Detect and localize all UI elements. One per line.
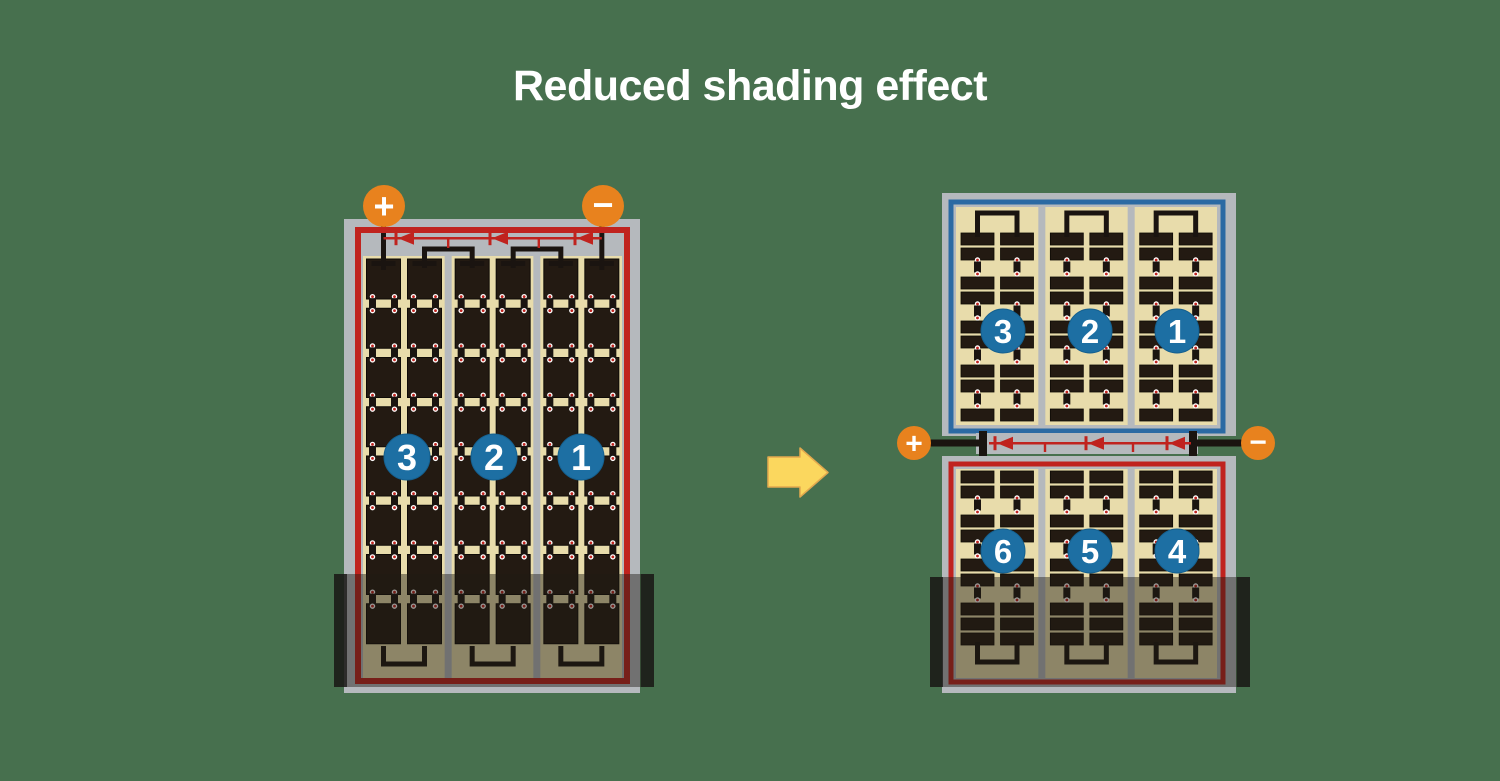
connector-dot	[1194, 511, 1197, 514]
connector-bar	[1153, 500, 1160, 511]
connector-dot	[1194, 347, 1197, 350]
diode-icon	[574, 231, 577, 245]
connector-dot	[371, 345, 374, 348]
connector-dot	[501, 345, 504, 348]
connector-dot	[434, 309, 437, 312]
connector-dot	[412, 359, 415, 362]
connector-dot	[460, 457, 463, 460]
connector-dot	[1065, 361, 1068, 364]
connector-bar	[609, 347, 616, 358]
connector-bar	[568, 495, 575, 506]
connector-bar	[369, 347, 376, 358]
connector-bar	[1192, 306, 1199, 317]
connector-dot	[589, 506, 592, 509]
connector-dot	[393, 408, 396, 411]
connector-bar	[458, 397, 465, 408]
right-bottom-badge-4-label: 4	[1168, 533, 1187, 570]
connector-dot	[1155, 347, 1158, 350]
connector-dot	[460, 542, 463, 545]
connector-dot	[393, 556, 396, 559]
connector-bar	[546, 446, 553, 457]
left-shade-edge	[334, 574, 347, 687]
connector-dot	[523, 506, 526, 509]
connector-dot	[976, 391, 979, 394]
half-cut-cell	[1179, 277, 1212, 289]
half-cut-cell	[1090, 471, 1123, 483]
connector-dot	[611, 492, 614, 495]
connector-dot	[434, 492, 437, 495]
right-section-divider	[1128, 207, 1135, 425]
connector-dot	[976, 511, 979, 514]
connector-dot	[976, 555, 979, 558]
diode-line-tick	[538, 238, 540, 248]
connector-dot	[393, 542, 396, 545]
connector-dot	[570, 295, 573, 298]
connector-dot	[1065, 317, 1068, 320]
connector-dot	[460, 408, 463, 411]
right-bottom-badge-5-label: 5	[1081, 533, 1099, 570]
connector-bar	[410, 298, 417, 309]
half-cut-cell	[1140, 515, 1173, 527]
connector-dot	[976, 405, 979, 408]
half-cut-cell	[1050, 409, 1083, 421]
connector-dot	[371, 309, 374, 312]
connector-bar	[410, 397, 417, 408]
connector-dot	[1065, 303, 1068, 306]
connector-dot	[611, 556, 614, 559]
connector-dot	[482, 408, 485, 411]
half-cut-cell	[1001, 515, 1034, 527]
connector-dot	[434, 394, 437, 397]
connector-bar	[587, 397, 594, 408]
half-cut-cell	[1140, 365, 1173, 377]
connector-bar	[568, 298, 575, 309]
half-cut-cell	[1090, 365, 1123, 377]
connector-bar	[1103, 350, 1110, 361]
connector-dot	[1065, 497, 1068, 500]
connector-bar	[1153, 350, 1160, 361]
connector-dot	[589, 359, 592, 362]
connector-dot	[1065, 511, 1068, 514]
connector-bar	[587, 544, 594, 555]
connector-bar	[480, 544, 487, 555]
connector-dot	[434, 542, 437, 545]
connector-bar	[410, 347, 417, 358]
left-panel-section-badges: 3 2 1	[384, 434, 604, 480]
connector-dot	[976, 497, 979, 500]
right-top-badge-3-label: 3	[994, 313, 1012, 350]
connector-dot	[523, 443, 526, 446]
connector-dot	[371, 556, 374, 559]
connector-dot	[482, 556, 485, 559]
diode-icon	[994, 436, 997, 450]
connector-bar	[410, 495, 417, 506]
connector-dot	[1155, 405, 1158, 408]
connector-dot	[1155, 361, 1158, 364]
solar-cell	[544, 308, 578, 348]
connector-dot	[523, 309, 526, 312]
connector-dot	[1016, 361, 1019, 364]
connector-bar	[499, 495, 506, 506]
connector-bar	[1103, 500, 1110, 511]
connector-dot	[589, 492, 592, 495]
connector-dot	[412, 506, 415, 509]
connector-bar	[1153, 306, 1160, 317]
connector-dot	[460, 394, 463, 397]
connector-dot	[523, 542, 526, 545]
connector-bar	[458, 298, 465, 309]
connector-bar	[369, 495, 376, 506]
left-positive-symbol: +	[373, 186, 394, 227]
connector-bar	[432, 446, 439, 457]
connector-dot	[371, 506, 374, 509]
connector-dot	[1065, 555, 1068, 558]
right-positive-symbol: +	[905, 428, 923, 461]
connector-dot	[976, 347, 979, 350]
connector-dot	[570, 542, 573, 545]
connector-dot	[1016, 497, 1019, 500]
connector-dot	[570, 408, 573, 411]
cell-busbar	[501, 261, 525, 266]
connector-bar	[391, 298, 398, 309]
connector-bar	[609, 544, 616, 555]
connector-dot	[393, 506, 396, 509]
connector-dot	[460, 359, 463, 362]
connector-dot	[548, 506, 551, 509]
connector-bar	[546, 544, 553, 555]
connector-dot	[548, 443, 551, 446]
connector-dot	[611, 359, 614, 362]
right-bottom-badge-6-label: 6	[994, 533, 1012, 570]
connector-bar	[609, 397, 616, 408]
half-cut-cell	[1001, 365, 1034, 377]
connector-dot	[482, 359, 485, 362]
connector-dot	[460, 492, 463, 495]
connector-dot	[976, 361, 979, 364]
half-cut-cell	[1140, 277, 1173, 289]
solar-cell	[408, 505, 442, 545]
cell-busbar	[413, 261, 437, 266]
half-cut-cell	[1179, 365, 1212, 377]
diagram-canvas: Reduced shading effect + − 3 2 1 +	[0, 0, 1500, 781]
connector-bar	[521, 544, 528, 555]
connector-dot	[393, 345, 396, 348]
right-top-badge-2-label: 2	[1081, 313, 1099, 350]
solar-cell	[367, 505, 401, 545]
junction-negative-wire	[1193, 440, 1244, 447]
connector-dot	[548, 345, 551, 348]
solar-cell	[408, 308, 442, 348]
connector-dot	[1155, 259, 1158, 262]
diode-line-tick	[1132, 443, 1134, 452]
connector-bar	[521, 495, 528, 506]
connector-dot	[548, 556, 551, 559]
connector-dot	[1155, 391, 1158, 394]
connector-dot	[548, 359, 551, 362]
connector-dot	[371, 359, 374, 362]
connector-dot	[434, 408, 437, 411]
right-section-divider	[1038, 207, 1045, 425]
connector-dot	[570, 556, 573, 559]
connector-bar	[974, 544, 981, 555]
connector-bar	[521, 298, 528, 309]
connector-bar	[1014, 262, 1021, 273]
left-badge-3-label: 3	[397, 437, 417, 478]
connector-bar	[410, 544, 417, 555]
junction-positive-wire	[930, 440, 986, 447]
cell-busbar	[549, 261, 573, 266]
solar-cell	[408, 358, 442, 398]
connector-dot	[460, 345, 463, 348]
connector-bar	[458, 446, 465, 457]
connector-dot	[611, 309, 614, 312]
half-cut-cell	[961, 471, 994, 483]
connector-bar	[568, 397, 575, 408]
connector-dot	[589, 408, 592, 411]
connector-dot	[1194, 273, 1197, 276]
half-cut-cell	[961, 515, 994, 527]
connector-bar	[369, 298, 376, 309]
connector-dot	[1016, 303, 1019, 306]
connector-dot	[1065, 347, 1068, 350]
connector-dot	[1194, 391, 1197, 394]
connector-dot	[434, 295, 437, 298]
connector-dot	[589, 394, 592, 397]
connector-dot	[1194, 259, 1197, 262]
connector-bar	[1192, 394, 1199, 405]
connector-dot	[1065, 541, 1068, 544]
connector-bar	[587, 495, 594, 506]
half-cut-cell	[1090, 409, 1123, 421]
connector-dot	[570, 359, 573, 362]
connector-dot	[393, 359, 396, 362]
right-negative-symbol: −	[1249, 426, 1267, 459]
connector-bar	[587, 298, 594, 309]
connector-dot	[1194, 405, 1197, 408]
left-shade-edge	[641, 574, 654, 687]
connector-dot	[1105, 273, 1108, 276]
half-cut-cell	[1050, 365, 1083, 377]
connector-dot	[460, 556, 463, 559]
half-cut-cell	[961, 365, 994, 377]
connector-bar	[391, 544, 398, 555]
connector-dot	[1105, 259, 1108, 262]
connector-dot	[434, 457, 437, 460]
solar-cell	[585, 358, 619, 398]
connector-dot	[1105, 497, 1108, 500]
solar-cell	[544, 505, 578, 545]
connector-dot	[501, 542, 504, 545]
connector-dot	[501, 556, 504, 559]
solar-cell	[496, 308, 530, 348]
connector-dot	[523, 345, 526, 348]
cell-busbar	[372, 261, 396, 266]
connector-bar	[499, 397, 506, 408]
connector-bar	[546, 495, 553, 506]
half-cut-cell	[1090, 515, 1123, 527]
half-cut-cell	[1001, 471, 1034, 483]
connector-dot	[482, 492, 485, 495]
connector-dot	[570, 345, 573, 348]
diode-icon	[1166, 436, 1169, 450]
connector-dot	[393, 492, 396, 495]
connector-dot	[482, 506, 485, 509]
connector-dot	[1105, 391, 1108, 394]
connector-dot	[523, 295, 526, 298]
connector-bar	[499, 298, 506, 309]
connector-bar	[546, 298, 553, 309]
half-cut-cell	[961, 409, 994, 421]
junction-terminal-bar	[979, 431, 987, 456]
diode-icon	[489, 231, 492, 245]
connector-bar	[480, 495, 487, 506]
connector-bar	[521, 446, 528, 457]
connector-dot	[548, 492, 551, 495]
connector-dot	[611, 443, 614, 446]
connector-dot	[412, 408, 415, 411]
connector-bar	[432, 298, 439, 309]
connector-bar	[1063, 306, 1070, 317]
connector-dot	[412, 492, 415, 495]
connector-bar	[391, 347, 398, 358]
connector-dot	[976, 273, 979, 276]
connector-bar	[974, 350, 981, 361]
connector-bar	[1103, 394, 1110, 405]
connector-bar	[458, 495, 465, 506]
connector-dot	[1155, 303, 1158, 306]
connector-bar	[1192, 262, 1199, 273]
connector-bar	[432, 495, 439, 506]
connector-bar	[974, 262, 981, 273]
solar-cell	[496, 358, 530, 398]
connector-dot	[611, 542, 614, 545]
connector-dot	[393, 295, 396, 298]
half-cut-cell	[1001, 277, 1034, 289]
half-cut-cell	[1090, 277, 1123, 289]
connector-bar	[521, 347, 528, 358]
connector-dot	[611, 506, 614, 509]
connector-bar	[1063, 394, 1070, 405]
left-panel-shading-overlay	[334, 574, 654, 687]
solar-cell	[455, 358, 489, 398]
solar-cell	[496, 505, 530, 545]
connector-dot	[501, 394, 504, 397]
shading-diagram: + − 3 2 1 + − 3 2	[0, 0, 1500, 781]
connector-bar	[609, 495, 616, 506]
connector-dot	[1155, 273, 1158, 276]
connector-dot	[412, 394, 415, 397]
connector-bar	[974, 306, 981, 317]
connector-dot	[611, 345, 614, 348]
right-shade-edge	[1237, 577, 1250, 687]
connector-dot	[371, 394, 374, 397]
connector-dot	[434, 506, 437, 509]
connector-dot	[589, 309, 592, 312]
connector-bar	[1153, 262, 1160, 273]
connector-dot	[1155, 511, 1158, 514]
connector-dot	[611, 457, 614, 460]
connector-dot	[589, 542, 592, 545]
half-cut-cell	[1050, 471, 1083, 483]
connector-dot	[482, 309, 485, 312]
connector-dot	[1016, 273, 1019, 276]
connector-dot	[1105, 303, 1108, 306]
connector-bar	[432, 397, 439, 408]
connector-bar	[369, 446, 376, 457]
connector-dot	[523, 394, 526, 397]
connector-dot	[1065, 405, 1068, 408]
right-panel-top-badges: 3 2 1	[981, 309, 1199, 353]
connector-bar	[1014, 350, 1021, 361]
connector-dot	[412, 345, 415, 348]
half-cut-cell	[1179, 409, 1212, 421]
connector-dot	[523, 408, 526, 411]
right-shade-area	[930, 577, 1250, 687]
connector-dot	[1065, 273, 1068, 276]
connector-bar	[458, 347, 465, 358]
half-cut-cell	[1050, 515, 1083, 527]
connector-bar	[1014, 500, 1021, 511]
left-negative-symbol: −	[592, 184, 613, 225]
connector-dot	[371, 295, 374, 298]
connector-dot	[1194, 497, 1197, 500]
half-cut-cell	[1179, 515, 1212, 527]
solar-cell	[367, 358, 401, 398]
connector-bar	[391, 495, 398, 506]
right-panel-shading-overlay	[930, 577, 1250, 687]
connector-bar	[1063, 500, 1070, 511]
connector-dot	[393, 309, 396, 312]
diode-icon	[395, 231, 398, 245]
half-cut-cell	[1001, 409, 1034, 421]
diode-line-tick	[1044, 443, 1046, 452]
connector-dot	[1155, 317, 1158, 320]
connector-bar	[499, 347, 506, 358]
half-cut-cell	[1140, 409, 1173, 421]
left-badge-1-label: 1	[571, 437, 591, 478]
diode-line-tick	[447, 238, 449, 248]
connector-dot	[570, 394, 573, 397]
connector-bar	[480, 347, 487, 358]
half-cut-cell	[1140, 471, 1173, 483]
connector-dot	[460, 309, 463, 312]
connector-bar	[1153, 394, 1160, 405]
connector-dot	[611, 394, 614, 397]
connector-dot	[1016, 511, 1019, 514]
connector-dot	[412, 295, 415, 298]
connector-dot	[501, 506, 504, 509]
connector-bar	[546, 347, 553, 358]
connector-dot	[371, 542, 374, 545]
connector-dot	[1105, 361, 1108, 364]
solar-cell	[455, 505, 489, 545]
connector-dot	[482, 295, 485, 298]
connector-dot	[548, 542, 551, 545]
half-cut-cell	[1179, 471, 1212, 483]
connector-dot	[1155, 497, 1158, 500]
connector-bar	[458, 544, 465, 555]
connector-dot	[548, 394, 551, 397]
connector-bar	[587, 347, 594, 358]
half-cut-cell	[961, 277, 994, 289]
connector-dot	[434, 443, 437, 446]
right-arrow-icon	[768, 448, 828, 497]
right-panel-bottom-badges: 6 5 4	[981, 529, 1199, 573]
connector-bar	[1063, 262, 1070, 273]
connector-bar	[391, 397, 398, 408]
connector-bar	[480, 298, 487, 309]
connector-dot	[976, 259, 979, 262]
